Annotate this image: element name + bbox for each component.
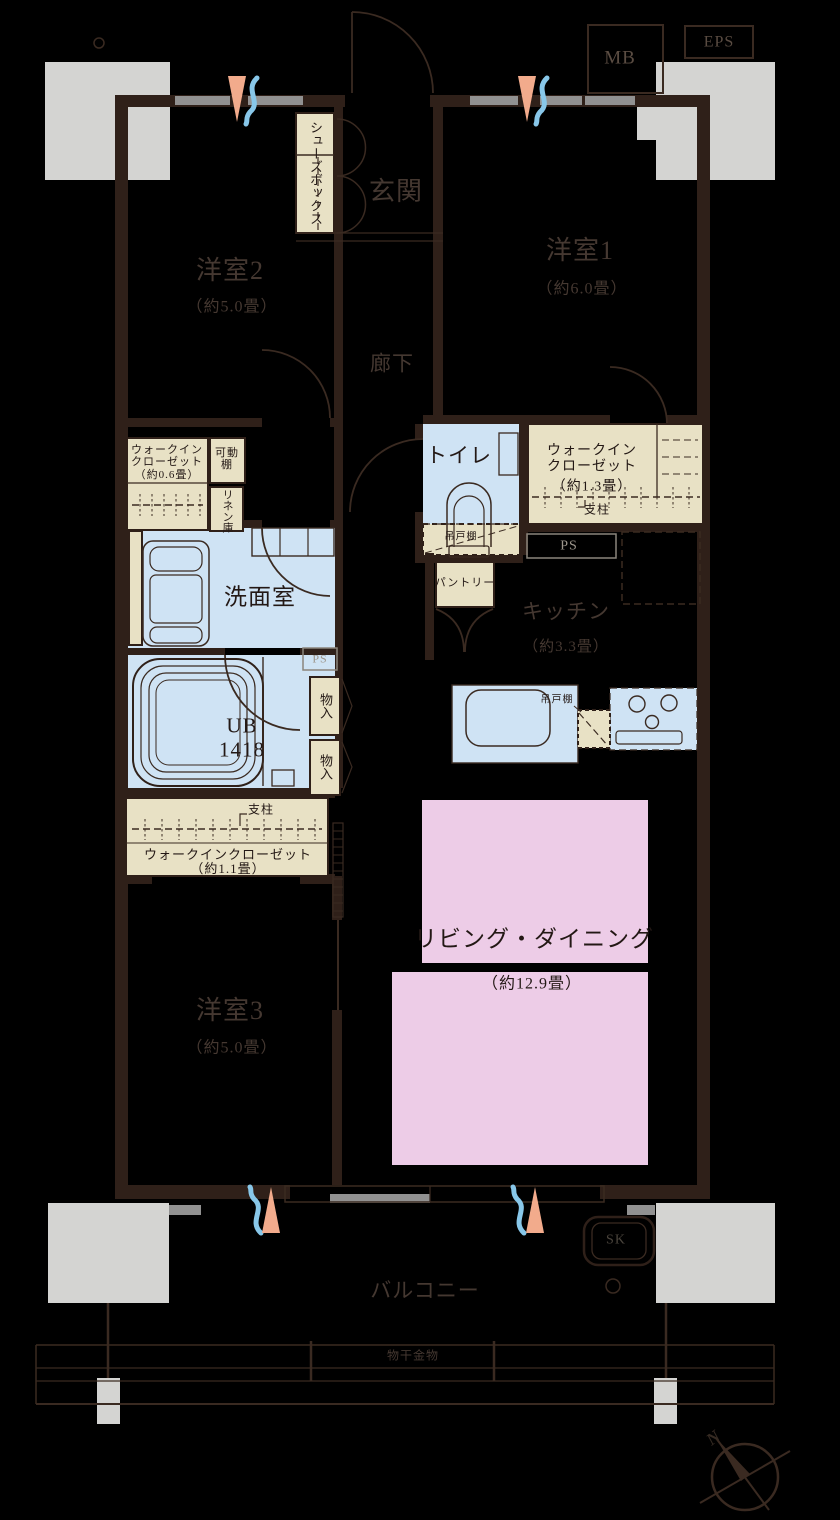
- label-unit-bath-size: 1418: [219, 739, 265, 762]
- vent-blue-bottom-right: [513, 1187, 524, 1233]
- label-corridor: 廊下: [370, 353, 414, 376]
- label-kitchen-size: （約3.3畳）: [523, 639, 609, 655]
- label-mb: MB: [604, 49, 636, 70]
- survey-point-marker: [94, 38, 104, 48]
- label-entrance: 玄関: [369, 178, 423, 206]
- label-monoire-lower: 物入: [318, 754, 332, 780]
- pillar-top-left: [45, 62, 170, 180]
- label-movable-shelf: 可動棚: [214, 448, 240, 472]
- pantry-door-swing-left: [436, 609, 464, 652]
- label-wic06-size: （約0.6畳）: [135, 470, 200, 482]
- refrigerator-space: [622, 532, 700, 604]
- label-bedroom1: 洋室1: [546, 237, 614, 265]
- balcony-post-left: [97, 1378, 120, 1424]
- label-wic11-shichu: 支柱: [248, 804, 274, 817]
- balcony-drain: [606, 1279, 620, 1293]
- pillar-top-right: [656, 62, 775, 180]
- label-bedroom3-size: （約5.0畳）: [186, 1039, 277, 1056]
- label-monoire-upper: 物入: [318, 693, 332, 719]
- pantry-door-swing-right: [465, 609, 493, 652]
- label-slop-sink: SK: [606, 1232, 626, 1247]
- label-living-dining-size: （約12.9畳）: [482, 975, 582, 992]
- label-bedroom2: 洋室2: [196, 257, 264, 285]
- label-ps-bath: PS: [312, 653, 327, 666]
- label-unit-bath: UB: [226, 715, 257, 738]
- label-linen-storage: リネン庫: [220, 489, 232, 529]
- room-fill-living-lower: [392, 972, 648, 1165]
- ld-side-opening: [333, 823, 343, 917]
- label-kitchen: キッチン: [522, 601, 610, 624]
- washroom-side-counter: [129, 531, 142, 645]
- label-wic11-size: （約1.1畳）: [190, 862, 265, 876]
- label-wic13-size: （約1.3畳）: [552, 479, 633, 494]
- balcony-post-right: [654, 1378, 677, 1424]
- kitchen-counter-stove: [610, 688, 697, 750]
- label-kitchen-hanging-cupboard: 吊戸棚: [541, 696, 574, 707]
- vent-orange-bottom-right: [526, 1187, 544, 1233]
- label-wic13-line1: ウォークイン: [547, 443, 637, 458]
- label-wic13-shichu: 支柱: [584, 504, 610, 517]
- label-toilet: トイレ: [426, 445, 492, 468]
- label-pantry: パントリー: [435, 578, 496, 590]
- bedroom2-door-swing: [262, 350, 330, 418]
- label-bedroom3: 洋室3: [196, 997, 264, 1025]
- label-living-dining: リビング・ダイニング: [414, 928, 654, 953]
- toilet-door-swing: [350, 439, 423, 512]
- entry-door-swing: [352, 12, 433, 93]
- label-washroom: 洗面室: [224, 586, 296, 611]
- label-balcony: バルコニー: [370, 1280, 480, 1303]
- label-shoes-box: シューズボックス: [308, 121, 322, 225]
- label-eps: EPS: [704, 33, 735, 50]
- label-bedroom2-size: （約5.0畳）: [186, 298, 277, 315]
- label-laundry-hardware: 物干金物: [387, 1350, 439, 1363]
- bedroom1-door-swing: [610, 367, 667, 424]
- label-ps-kitchen: PS: [560, 538, 578, 553]
- label-wic06-line2: クローゼット: [131, 457, 203, 469]
- label-toilet-hanging-cupboard: 吊戸棚: [445, 533, 478, 544]
- pillar-bottom-left: [48, 1203, 169, 1303]
- pillar-bottom-right: [656, 1203, 775, 1303]
- label-wic13-line2: クローゼット: [547, 459, 637, 474]
- label-wic11: ウォークインクローゼット: [144, 848, 312, 862]
- floor-plan: MB EPS 玄関 シューズボックス 洋室2 （約5.0畳） 洋室1 （約6.0…: [0, 0, 840, 1520]
- label-bedroom1-size: （約6.0畳）: [536, 280, 627, 297]
